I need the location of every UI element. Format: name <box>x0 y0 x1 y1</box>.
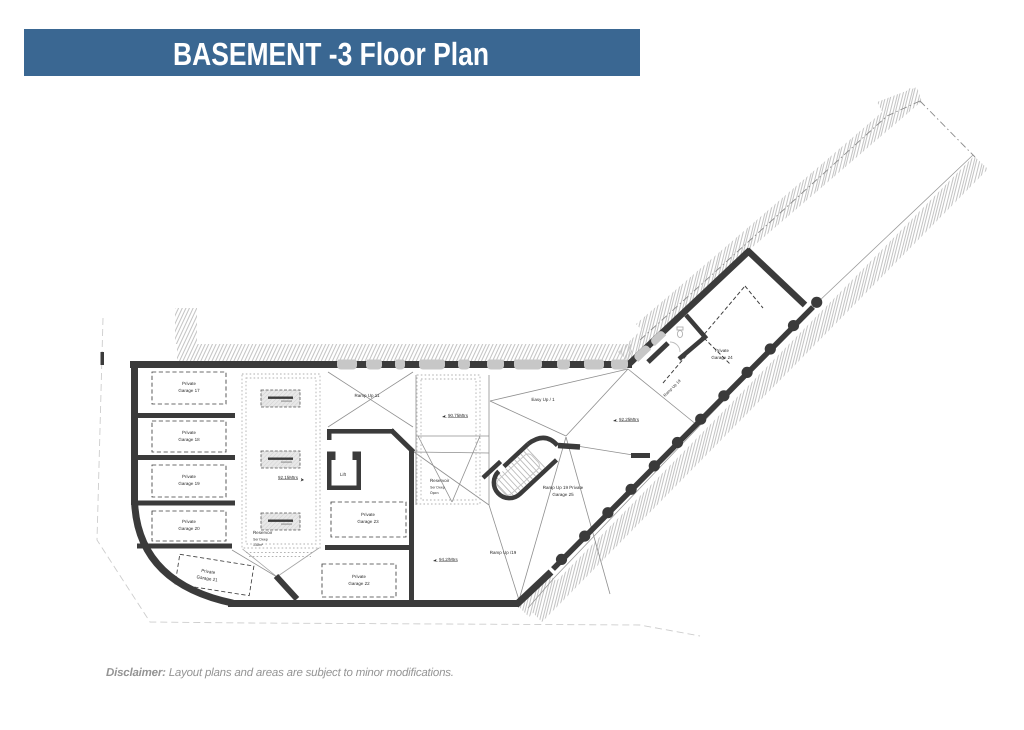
svg-text:92.25Mtrs: 92.25Mtrs <box>619 417 639 422</box>
svg-text:Reservoir: Reservoir <box>430 478 449 483</box>
svg-text:BASEMENT -3 Floor Plan: BASEMENT -3 Floor Plan <box>173 36 489 72</box>
svg-text:Garage 25: Garage 25 <box>552 492 573 497</box>
svg-text:Garage 18: Garage 18 <box>178 437 199 442</box>
svg-text:Ramp Up 19 Private: Ramp Up 19 Private <box>543 485 584 490</box>
svg-text:Garage 22: Garage 22 <box>348 581 369 586</box>
svg-text:Garage 21: Garage 21 <box>196 574 218 582</box>
svg-text:Garage 19: Garage 19 <box>178 481 199 486</box>
svg-text:Ramp Up 19: Ramp Up 19 <box>663 378 682 397</box>
svg-text:90.75Mtrs: 90.75Mtrs <box>448 413 468 418</box>
svg-text:Private: Private <box>182 474 196 479</box>
svg-text:Private: Private <box>201 568 216 575</box>
svg-text:Ramp Up 11: Ramp Up 11 <box>355 393 380 398</box>
svg-text:Ramp Up /19: Ramp Up /19 <box>490 550 517 555</box>
svg-text:92.15Mtrs: 92.15Mtrs <box>278 475 298 480</box>
svg-text:Garage 20: Garage 20 <box>178 526 199 531</box>
svg-text:130m²: 130m² <box>253 544 263 548</box>
svg-text:Open: Open <box>430 492 439 496</box>
svg-text:Ser Deep: Ser Deep <box>253 538 268 542</box>
svg-text:Garage 23: Garage 23 <box>357 519 378 524</box>
svg-text:Private: Private <box>182 381 196 386</box>
svg-text:Ser Deep: Ser Deep <box>430 486 445 490</box>
svg-text:94.2/Mtrs: 94.2/Mtrs <box>439 557 458 562</box>
svg-text:Garage 24: Garage 24 <box>711 355 732 360</box>
svg-text:Reservoir: Reservoir <box>253 530 272 535</box>
svg-text:Private: Private <box>352 574 366 579</box>
svg-text:Garage 17: Garage 17 <box>178 388 199 393</box>
svg-text:Private: Private <box>715 348 729 353</box>
svg-text:Private: Private <box>182 430 196 435</box>
svg-text:Disclaimer: Layout plans and a: Disclaimer: Layout plans and areas are s… <box>106 667 454 679</box>
svg-text:Private: Private <box>361 512 375 517</box>
svg-text:Private: Private <box>182 519 196 524</box>
svg-text:Lift: Lift <box>340 472 346 477</box>
svg-text:Easy Up / 1: Easy Up / 1 <box>531 397 554 402</box>
